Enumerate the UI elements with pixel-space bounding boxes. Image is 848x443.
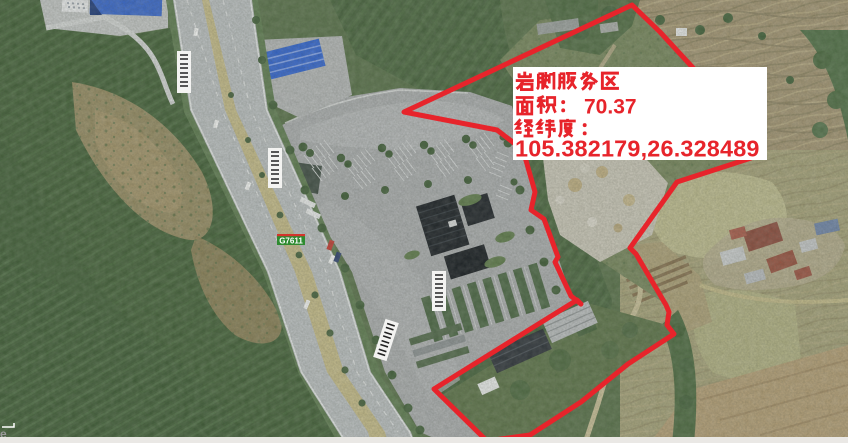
svg-text:70.37: 70.37 xyxy=(584,96,637,119)
svg-text:105.382179,26.328489: 105.382179,26.328489 xyxy=(515,136,760,162)
svg-text:G7611: G7611 xyxy=(279,237,303,246)
